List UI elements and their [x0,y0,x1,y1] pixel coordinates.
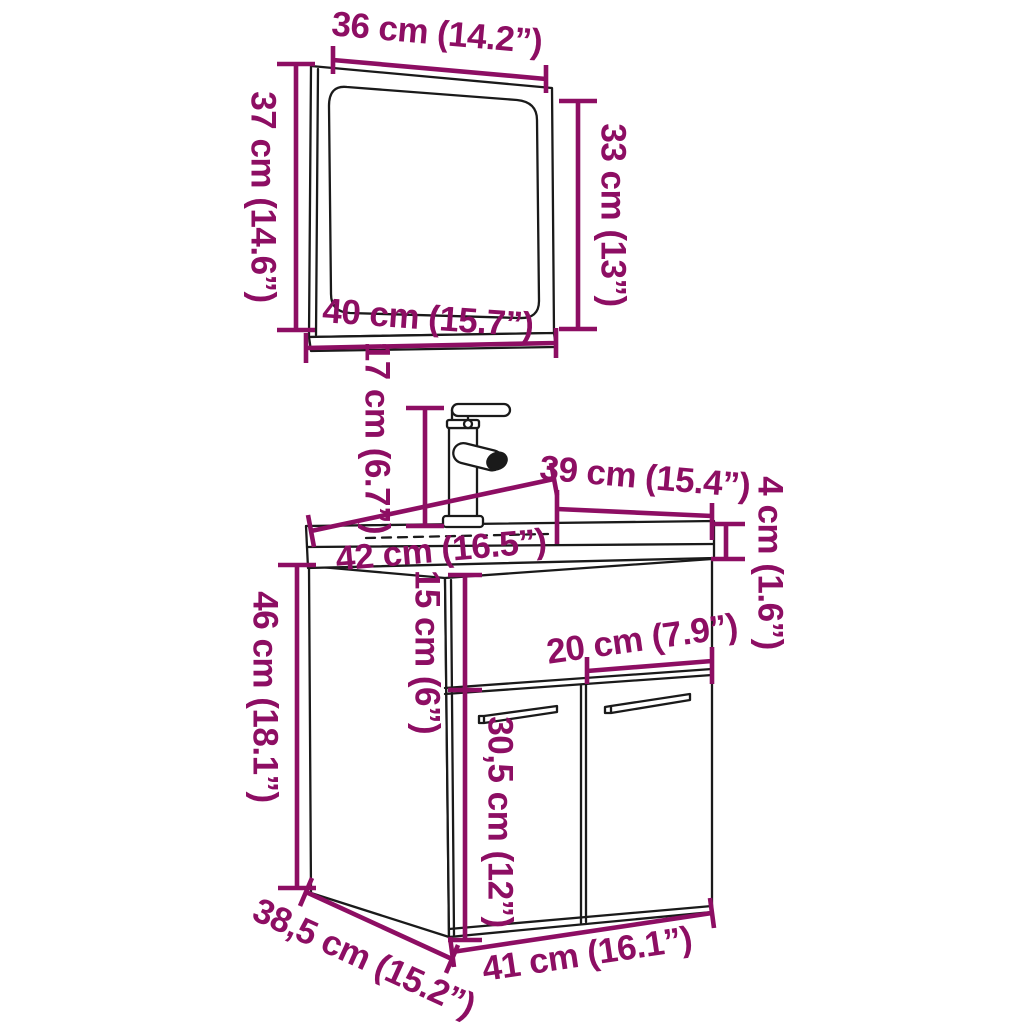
label-faucet-height: 17 cm (6.7”) [358,342,397,534]
label-door-height: 30,5 cm (12”) [481,716,520,927]
faucet-handle [452,404,510,416]
dim-line-mirror-glass-height [559,101,597,329]
label-sink-thickness: 4 cm (1.6”) [751,476,790,649]
label-mirror-width: 36 cm (14.2”) [330,4,544,61]
diagram-canvas: 36 cm (14.2”) 37 cm (14.6”) 33 cm (13”) … [0,0,1024,1024]
faucet-base [443,516,483,527]
label-cabinet-height: 46 cm (18.1”) [246,591,285,802]
label-sink-depth: 39 cm (15.4”) [538,448,752,505]
mirror-glass [329,87,539,318]
label-mirror-glass-height: 33 cm (13”) [594,123,633,306]
faucet-screw [464,420,472,428]
diagram-page: 36 cm (14.2”) 37 cm (14.6”) 33 cm (13”) … [0,0,1024,1024]
label-top-section-height: 15 cm (6”) [408,570,447,734]
label-mirror-height: 37 cm (14.6”) [244,91,283,302]
dim-line-sink-thickness [711,524,745,559]
